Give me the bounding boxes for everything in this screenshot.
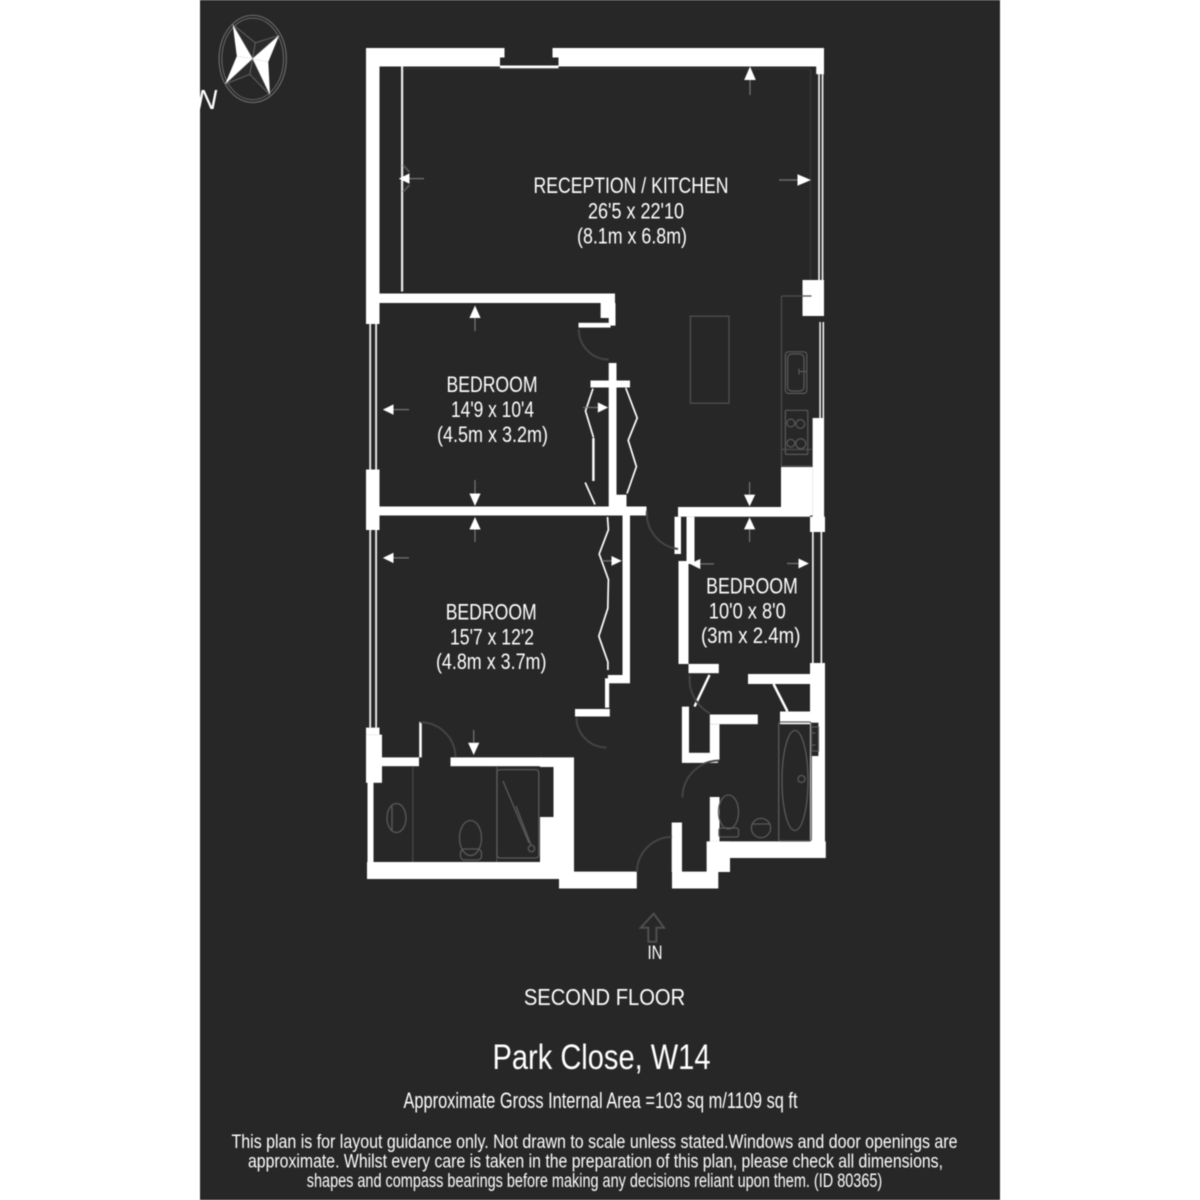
svg-text:shapes and compass bearings be: shapes and compass bearings before makin…	[307, 1170, 883, 1192]
svg-text:IN: IN	[648, 942, 663, 964]
svg-text:N: N	[197, 84, 218, 115]
svg-text:(8.1m x 6.8m): (8.1m x 6.8m)	[577, 224, 687, 249]
svg-text:15'7 x 12'2: 15'7 x 12'2	[450, 625, 534, 650]
svg-text:RECEPTION / KITCHEN: RECEPTION / KITCHEN	[534, 173, 729, 198]
svg-text:BEDROOM: BEDROOM	[446, 599, 537, 624]
svg-text:10'0 x 8'0: 10'0 x 8'0	[709, 599, 786, 624]
svg-text:Approximate Gross Internal Are: Approximate Gross Internal Area =103 sq …	[404, 1088, 798, 1113]
svg-text:(4.8m x 3.7m): (4.8m x 3.7m)	[436, 649, 547, 674]
svg-text:BEDROOM: BEDROOM	[447, 372, 538, 397]
svg-text:(3m x 2.4m): (3m x 2.4m)	[701, 623, 801, 648]
svg-text:SECOND FLOOR: SECOND FLOOR	[524, 984, 685, 1010]
svg-text:14'9 x 10'4: 14'9 x 10'4	[451, 397, 534, 422]
svg-text:26'5 x 22'10: 26'5 x 22'10	[588, 199, 684, 224]
svg-text:Park Close, W14: Park Close, W14	[493, 1037, 711, 1077]
svg-text:(4.5m x 3.2m): (4.5m x 3.2m)	[437, 422, 548, 447]
svg-text:BEDROOM: BEDROOM	[706, 574, 798, 599]
